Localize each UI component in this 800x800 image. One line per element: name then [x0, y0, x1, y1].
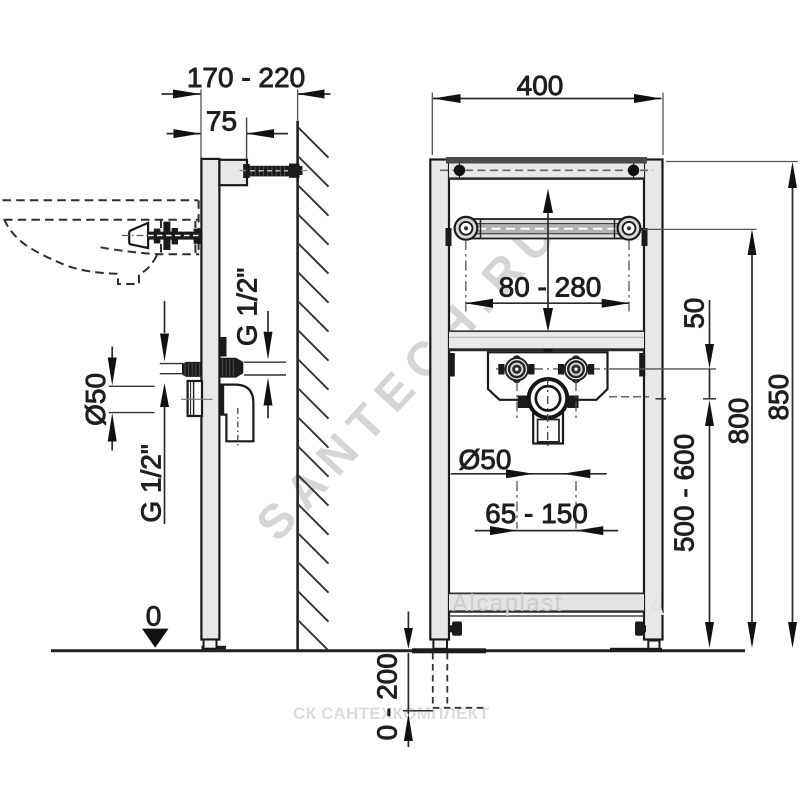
svg-text:75: 75	[206, 106, 237, 137]
svg-text:Ø50: Ø50	[80, 373, 111, 426]
svg-text:0 - 200: 0 - 200	[372, 653, 403, 740]
svg-text:G 1/2": G 1/2"	[232, 268, 263, 346]
svg-text:65 - 150: 65 - 150	[485, 498, 588, 529]
svg-text:Ø50: Ø50	[459, 444, 512, 475]
svg-text:Alcaplast: Alcaplast	[452, 590, 563, 617]
svg-text:170 - 220: 170 - 220	[187, 62, 305, 93]
svg-text:G 1/2": G 1/2"	[135, 444, 166, 522]
svg-text:850: 850	[763, 374, 794, 421]
svg-text:500 - 600: 500 - 600	[669, 434, 700, 552]
svg-text:400: 400	[517, 70, 564, 101]
svg-text:800: 800	[723, 398, 754, 445]
svg-text:50: 50	[679, 298, 710, 329]
svg-text:A: A	[648, 594, 664, 621]
svg-text:80 - 280: 80 - 280	[499, 272, 602, 303]
svg-text:0: 0	[146, 601, 162, 632]
